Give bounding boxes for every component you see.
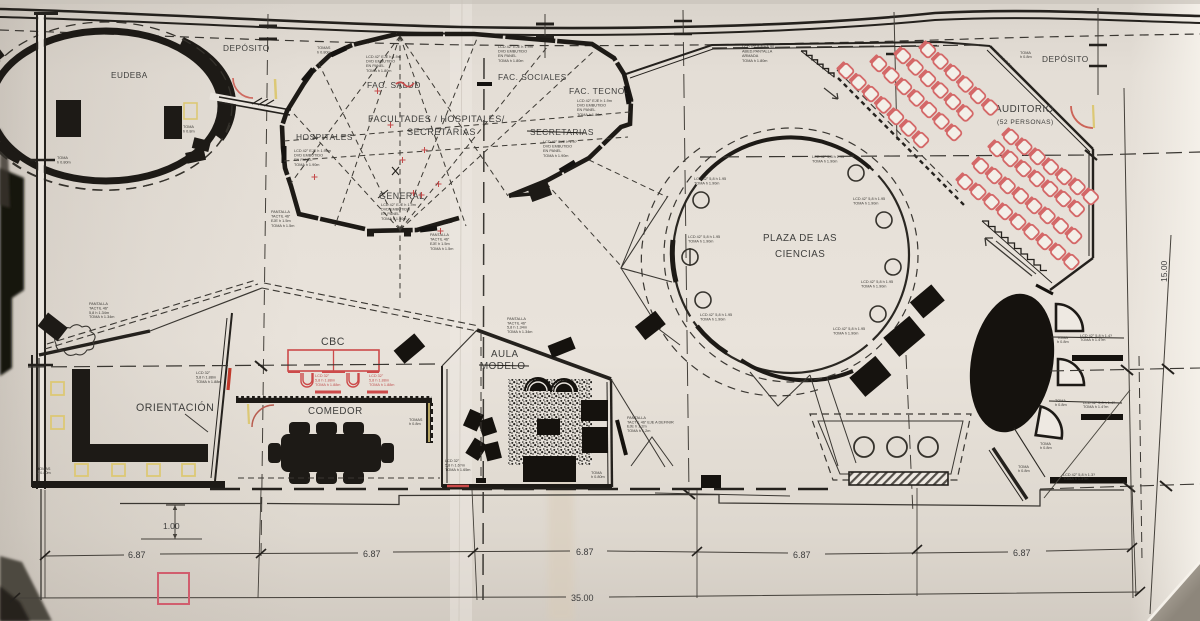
svg-text:EN PANEL: EN PANEL (366, 64, 385, 68)
svg-text:EJE h 1.5m: EJE h 1.5m (430, 242, 450, 246)
svg-text:TOMAS: TOMAS (317, 46, 331, 50)
svg-text:DVD EMBUTIDO: DVD EMBUTIDO (543, 145, 572, 149)
svg-text:h 0.8m: h 0.8m (1040, 446, 1052, 450)
svg-text:TOMA h 1.90m: TOMA h 1.90m (833, 331, 858, 335)
svg-text:ARMADA: ARMADA (742, 54, 759, 58)
svg-text:LCD 42" 5,8 h 1.90: LCD 42" 5,8 h 1.90 (742, 45, 774, 49)
svg-text:TOMA h 1.2m: TOMA h 1.2m (627, 429, 650, 433)
svg-text:h 0.8m: h 0.8m (1018, 469, 1030, 473)
svg-text:TOMA h 1.80m: TOMA h 1.80m (498, 59, 523, 63)
svg-text:MODELO: MODELO (480, 361, 525, 372)
svg-text:TOMA h 1.90m: TOMA h 1.90m (853, 201, 878, 205)
svg-text:ABED.PANTALLA: ABED.PANTALLA (742, 50, 773, 54)
svg-text:6.87: 6.87 (576, 547, 594, 557)
svg-text:h 0.80m: h 0.80m (37, 471, 51, 475)
svg-text:HOSPITALES: HOSPITALES (296, 132, 353, 142)
svg-text:(52 PERSONAS): (52 PERSONAS) (997, 119, 1054, 126)
svg-text:LCD 42" 5,8 h 1.95: LCD 42" 5,8 h 1.95 (694, 177, 726, 181)
svg-text:LCD 42" 5,8 h 1.95: LCD 42" 5,8 h 1.95 (833, 327, 865, 331)
svg-text:LCD 42" 5,8 h 1.95: LCD 42" 5,8 h 1.95 (688, 235, 720, 239)
svg-text:TOMA h 1.34m: TOMA h 1.34m (507, 330, 532, 334)
svg-text:LCD 42" 5,8 h 1.95: LCD 42" 5,8 h 1.95 (853, 197, 885, 201)
svg-text:TOMA h 1.90m: TOMA h 1.90m (861, 284, 886, 288)
svg-text:h 0.8m: h 0.8m (183, 130, 195, 134)
svg-text:TOMA: TOMA (57, 156, 68, 160)
svg-text:LCD 32": LCD 32" (196, 371, 211, 375)
svg-text:EN PANEL: EN PANEL (381, 212, 400, 216)
svg-text:DVD EMBUTIDO: DVD EMBUTIDO (498, 50, 527, 54)
svg-text:TOMA h 1.90m: TOMA h 1.90m (688, 239, 713, 243)
svg-text:LCD 32": LCD 32" (315, 374, 330, 378)
svg-text:h 0.8m: h 0.8m (1055, 403, 1067, 407)
svg-text:h 0.8m: h 0.8m (1057, 340, 1069, 344)
svg-text:15.00: 15.00 (1159, 260, 1169, 282)
svg-text:ORIENTACIÓN: ORIENTACIÓN (136, 401, 214, 414)
svg-text:TOMA h 1.4?m: TOMA h 1.4?m (1080, 338, 1105, 342)
svg-text:TACTIL 46": TACTIL 46" (271, 215, 291, 219)
svg-text:EN PANEL: EN PANEL (543, 149, 562, 153)
svg-text:LCD 42" EJE h 1.9?: LCD 42" EJE h 1.9? (543, 140, 577, 144)
svg-text:6.87: 6.87 (793, 550, 811, 560)
svg-text:DVD EMBUTIDO: DVD EMBUTIDO (366, 60, 395, 64)
svg-text:h 0.80m: h 0.80m (317, 51, 331, 55)
svg-text:LCD 42" EJE h 1.9m: LCD 42" EJE h 1.9m (366, 55, 401, 59)
svg-text:5,8 h 1.88m: 5,8 h 1.88m (196, 375, 216, 379)
svg-text:TOMA h 1.90m: TOMA h 1.90m (294, 163, 319, 167)
svg-text:CIENCIAS: CIENCIAS (775, 249, 825, 260)
svg-text:DVD EMBUTIDO: DVD EMBUTIDO (381, 208, 410, 212)
svg-text:LCD 32": LCD 32" (445, 459, 460, 463)
svg-text:h 0.8m: h 0.8m (409, 422, 421, 426)
svg-text:TOMA h 1.65m: TOMA h 1.65m (445, 468, 470, 472)
svg-text:h 0.8m: h 0.8m (1020, 55, 1032, 59)
svg-text:5,8 h 1.34m: 5,8 h 1.34m (89, 311, 109, 315)
svg-text:h 0.80m: h 0.80m (57, 161, 71, 165)
svg-text:AUDITORIO: AUDITORIO (995, 104, 1054, 115)
svg-text:TOMA: TOMA (183, 125, 194, 129)
svg-text:AULA: AULA (491, 349, 519, 360)
svg-text:LCD 42" EJE h 1.90m: LCD 42" EJE h 1.90m (294, 149, 331, 153)
svg-text:FAC. TECNO.: FAC. TECNO. (569, 86, 628, 96)
svg-text:LCD 42" EJE h 1.9m: LCD 42" EJE h 1.9m (577, 99, 612, 103)
svg-text:TOMA h 1.88m: TOMA h 1.88m (369, 383, 394, 387)
svg-text:FAC. SOCIALES: FAC. SOCIALES (498, 72, 567, 82)
svg-text:EJE h 1.5m: EJE h 1.5m (271, 219, 291, 223)
svg-text:EUDEBA: EUDEBA (111, 71, 148, 80)
svg-text:GENERAL: GENERAL (379, 191, 425, 201)
svg-text:6.87: 6.87 (363, 549, 381, 559)
svg-text:FACULTADES / HOSPITALES/: FACULTADES / HOSPITALES/ (368, 114, 505, 124)
svg-text:TOMA h 1.90m: TOMA h 1.90m (812, 159, 837, 163)
svg-text:TACTIL 46": TACTIL 46" (89, 306, 109, 310)
svg-text:LCD 42" EJE h 1.9m: LCD 42" EJE h 1.9m (498, 45, 533, 49)
svg-text:COMEDOR: COMEDOR (308, 406, 363, 417)
svg-text:TACTIL 46": TACTIL 46" (430, 238, 450, 242)
svg-text:PANTALLA: PANTALLA (271, 210, 290, 214)
svg-text:TOMA h 1.88m: TOMA h 1.88m (315, 383, 340, 387)
svg-text:TOMA h 1.4?m: TOMA h 1.4?m (1083, 405, 1108, 409)
svg-text:TOMA h 1.5m: TOMA h 1.5m (271, 224, 294, 228)
svg-text:CBC: CBC (321, 336, 345, 348)
svg-text:LCD 42" 5,8 h 1.95: LCD 42" 5,8 h 1.95 (861, 280, 893, 284)
svg-text:5,8 h 1.88m: 5,8 h 1.88m (369, 379, 389, 383)
svg-text:PANTALLA: PANTALLA (89, 302, 108, 306)
svg-text:LCD 32": LCD 32" (369, 374, 384, 378)
svg-text:DEPÓSITO: DEPÓSITO (223, 43, 270, 53)
svg-text:TOMA h 1.90m: TOMA h 1.90m (543, 154, 568, 158)
svg-text:PLAZA DE LAS: PLAZA DE LAS (763, 233, 837, 244)
svg-text:TOMA h 1.88m: TOMA h 1.88m (196, 380, 221, 384)
svg-text:LCD 42" 5,8 h 1.95: LCD 42" 5,8 h 1.95 (700, 313, 732, 317)
svg-text:EN PANEL: EN PANEL (498, 54, 517, 58)
svg-text:TOMA h 1.80m: TOMA h 1.80m (742, 59, 767, 63)
svg-text:EN PANEL: EN PANEL (577, 108, 596, 112)
svg-text:SECRETARÍAS: SECRETARÍAS (407, 127, 476, 137)
svg-text:TOMA h 1.3?m: TOMA h 1.3?m (1063, 477, 1088, 481)
svg-text:EN PANEL: EN PANEL (294, 158, 313, 162)
svg-text:1.00: 1.00 (163, 521, 180, 531)
svg-text:LCD 42" EJE h 1.9m: LCD 42" EJE h 1.9m (381, 203, 416, 207)
svg-text:PANTALLA: PANTALLA (430, 233, 449, 237)
svg-text:6.87: 6.87 (128, 550, 146, 560)
svg-text:TOMA h 1.5m: TOMA h 1.5m (430, 247, 453, 251)
svg-text:TOMA h 1.90m: TOMA h 1.90m (381, 217, 406, 221)
svg-text:h 0.80m: h 0.80m (591, 475, 605, 479)
svg-text:TOMA h 1.80m: TOMA h 1.80m (577, 113, 602, 117)
svg-text:TOMA h 1.34m: TOMA h 1.34m (89, 315, 114, 319)
svg-text:6.87: 6.87 (1013, 548, 1031, 558)
svg-text:TOMA h 1.80m: TOMA h 1.80m (366, 69, 391, 73)
svg-text:5,8 h 1.6?m: 5,8 h 1.6?m (445, 463, 465, 467)
svg-text:TOMA h 1.90m: TOMA h 1.90m (700, 317, 725, 321)
svg-text:DVD EMBUTIDO: DVD EMBUTIDO (294, 154, 323, 158)
svg-text:35.00: 35.00 (571, 593, 594, 603)
svg-text:DEPÓSITO: DEPÓSITO (1042, 54, 1089, 64)
svg-text:DVD EMBUTIDO: DVD EMBUTIDO (577, 104, 606, 108)
svg-text:5,8 h 1.88m: 5,8 h 1.88m (315, 379, 335, 383)
svg-text:TOMA h 1.90m: TOMA h 1.90m (694, 181, 719, 185)
